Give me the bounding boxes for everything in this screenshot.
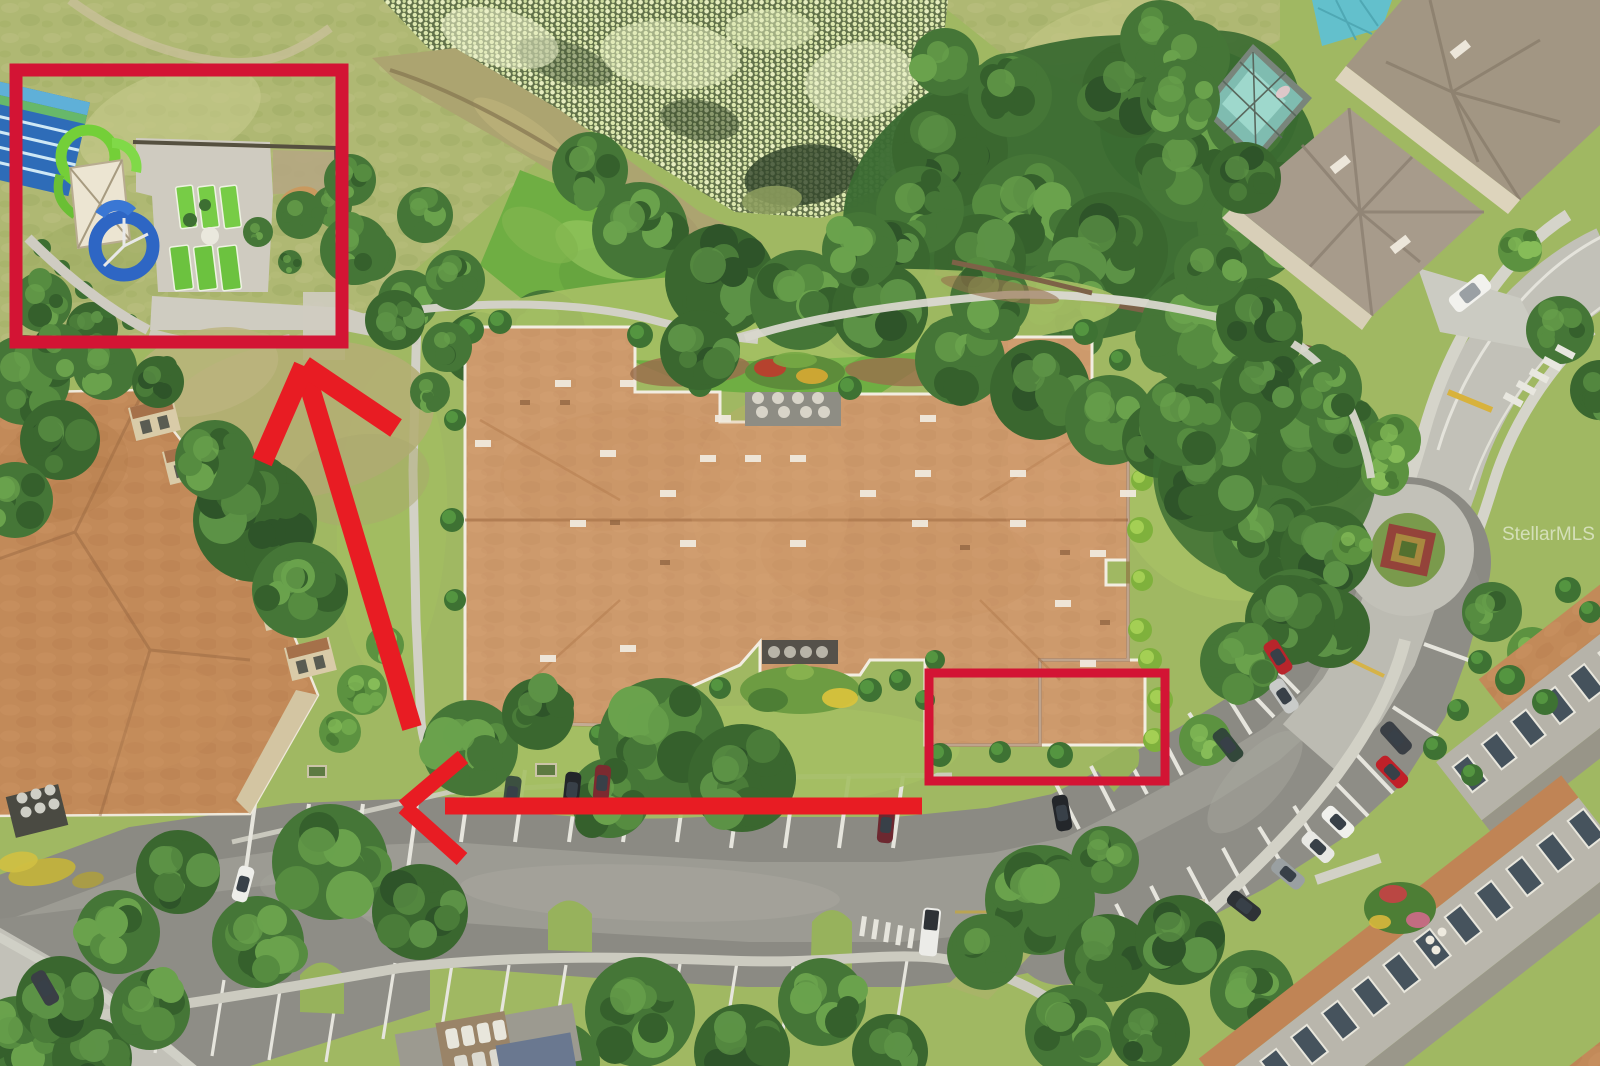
svg-text:StellarMLS: StellarMLS [1502,524,1595,545]
